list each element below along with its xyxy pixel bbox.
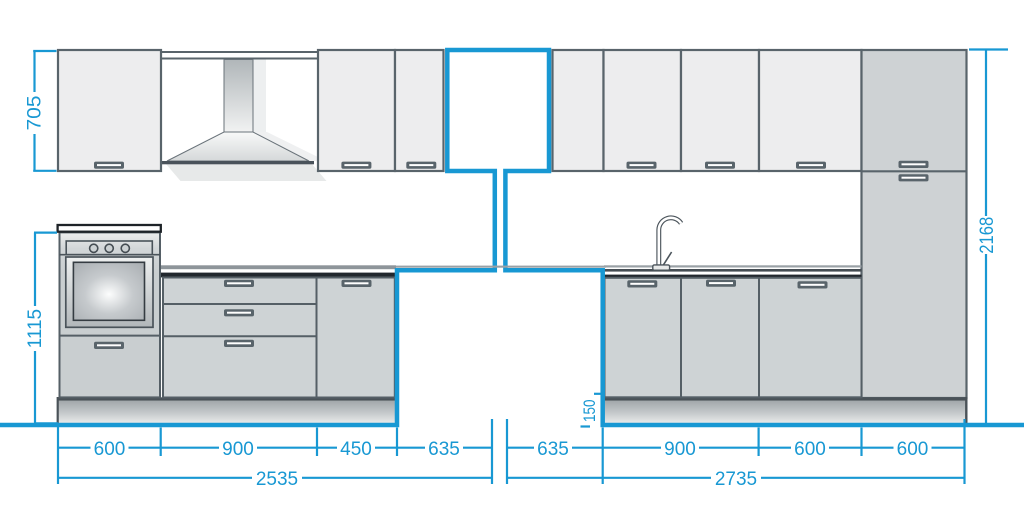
svg-text:600: 600 bbox=[897, 439, 929, 460]
svg-text:450: 450 bbox=[340, 439, 372, 460]
svg-text:635: 635 bbox=[428, 439, 460, 460]
svg-text:900: 900 bbox=[664, 439, 696, 460]
svg-text:150: 150 bbox=[580, 399, 599, 422]
svg-text:1115: 1115 bbox=[25, 309, 46, 348]
svg-text:600: 600 bbox=[94, 439, 126, 460]
svg-text:2168: 2168 bbox=[977, 217, 998, 254]
svg-text:2535: 2535 bbox=[256, 469, 298, 490]
svg-text:600: 600 bbox=[794, 439, 826, 460]
svg-text:900: 900 bbox=[222, 439, 254, 460]
svg-text:705: 705 bbox=[24, 96, 45, 131]
svg-text:635: 635 bbox=[537, 439, 569, 460]
svg-text:2735: 2735 bbox=[715, 469, 757, 490]
